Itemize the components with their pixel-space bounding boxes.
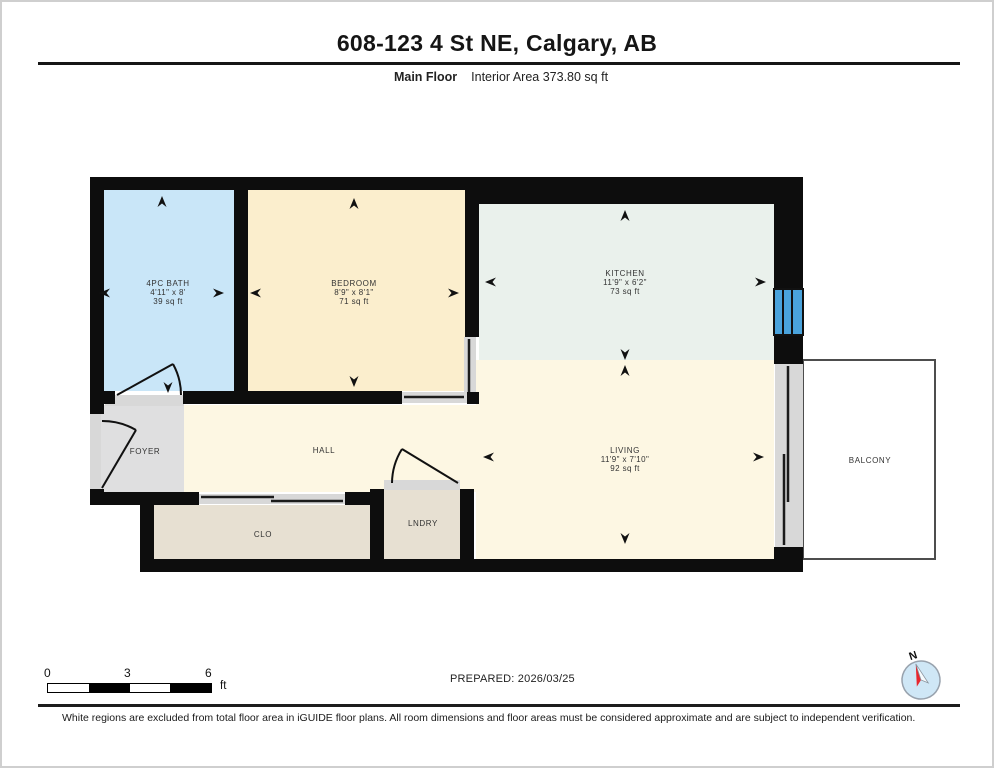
floorplan-page: 608-123 4 St NE, Calgary, AB Main FloorI… xyxy=(0,0,994,768)
closet-label: CLO xyxy=(254,530,272,539)
wall-left xyxy=(90,177,104,414)
wall-top-right xyxy=(465,177,803,204)
living-dims: 11'9" x 7'10" xyxy=(601,455,649,464)
scale-unit-label: ft xyxy=(220,680,226,692)
compass-icon: N xyxy=(888,642,952,706)
scale-segment xyxy=(89,684,130,692)
entry-threshold xyxy=(90,414,101,489)
kitchen-window xyxy=(774,289,803,335)
scale-segment xyxy=(170,684,211,692)
scale-tick-6: 6 xyxy=(205,666,212,680)
wall-laundry-right xyxy=(460,489,474,572)
wall-hall-closet-left xyxy=(152,492,199,505)
kitchen-sqft: 73 sq ft xyxy=(610,287,640,296)
scale-segment xyxy=(130,684,171,692)
floorplan-drawing: 4PC BATH 4'11" x 8' 39 sq ft BEDROOM 8'9… xyxy=(2,2,994,768)
bath-dims: 4'11" x 8' xyxy=(150,288,186,297)
disclaimer-text: White regions are excluded from total fl… xyxy=(62,712,982,724)
wall-right-upper xyxy=(774,204,803,289)
foyer-label: FOYER xyxy=(130,447,161,456)
wall-bedroom-corner xyxy=(467,392,479,404)
living-label: LIVING xyxy=(610,446,640,455)
bedroom-label: BEDROOM xyxy=(331,279,377,288)
compass-north-label: N xyxy=(908,649,919,663)
laundry-threshold xyxy=(384,480,460,490)
bedroom-sqft: 71 sq ft xyxy=(339,297,369,306)
prepared-date: PREPARED: 2026/03/25 xyxy=(450,673,575,685)
scale-bar: 0 3 6 ft xyxy=(47,666,277,698)
balcony-label: BALCONY xyxy=(849,456,891,465)
bath-sqft: 39 sq ft xyxy=(153,297,183,306)
wall-closet-laundry xyxy=(370,489,384,572)
wall-bath-bedroom xyxy=(234,177,248,404)
bedroom-dims: 8'9" x 8'1" xyxy=(334,288,373,297)
wall-top-left xyxy=(90,177,479,190)
hall-label: HALL xyxy=(313,446,335,455)
wall-right-mid xyxy=(774,335,803,364)
footer-divider xyxy=(38,704,960,707)
scale-tick-3: 3 xyxy=(124,666,131,680)
wall-bedroom-bottom xyxy=(183,391,402,404)
wall-bedroom-kitchen xyxy=(465,177,479,337)
bath-label: 4PC BATH xyxy=(146,279,189,288)
wall-right-lower xyxy=(774,547,803,572)
wall-bath-bottom-left xyxy=(90,391,115,404)
laundry-label: LNDRY xyxy=(408,519,438,528)
scale-segment xyxy=(48,684,89,692)
living-sqft: 92 sq ft xyxy=(610,464,640,473)
closet-slider-track xyxy=(199,494,345,504)
bath-threshold xyxy=(105,395,184,406)
scale-bar-segments xyxy=(47,683,212,693)
kitchen-dims: 11'9" x 6'2" xyxy=(603,278,647,287)
kitchen-label: KITCHEN xyxy=(605,269,644,278)
scale-tick-0: 0 xyxy=(44,666,51,680)
